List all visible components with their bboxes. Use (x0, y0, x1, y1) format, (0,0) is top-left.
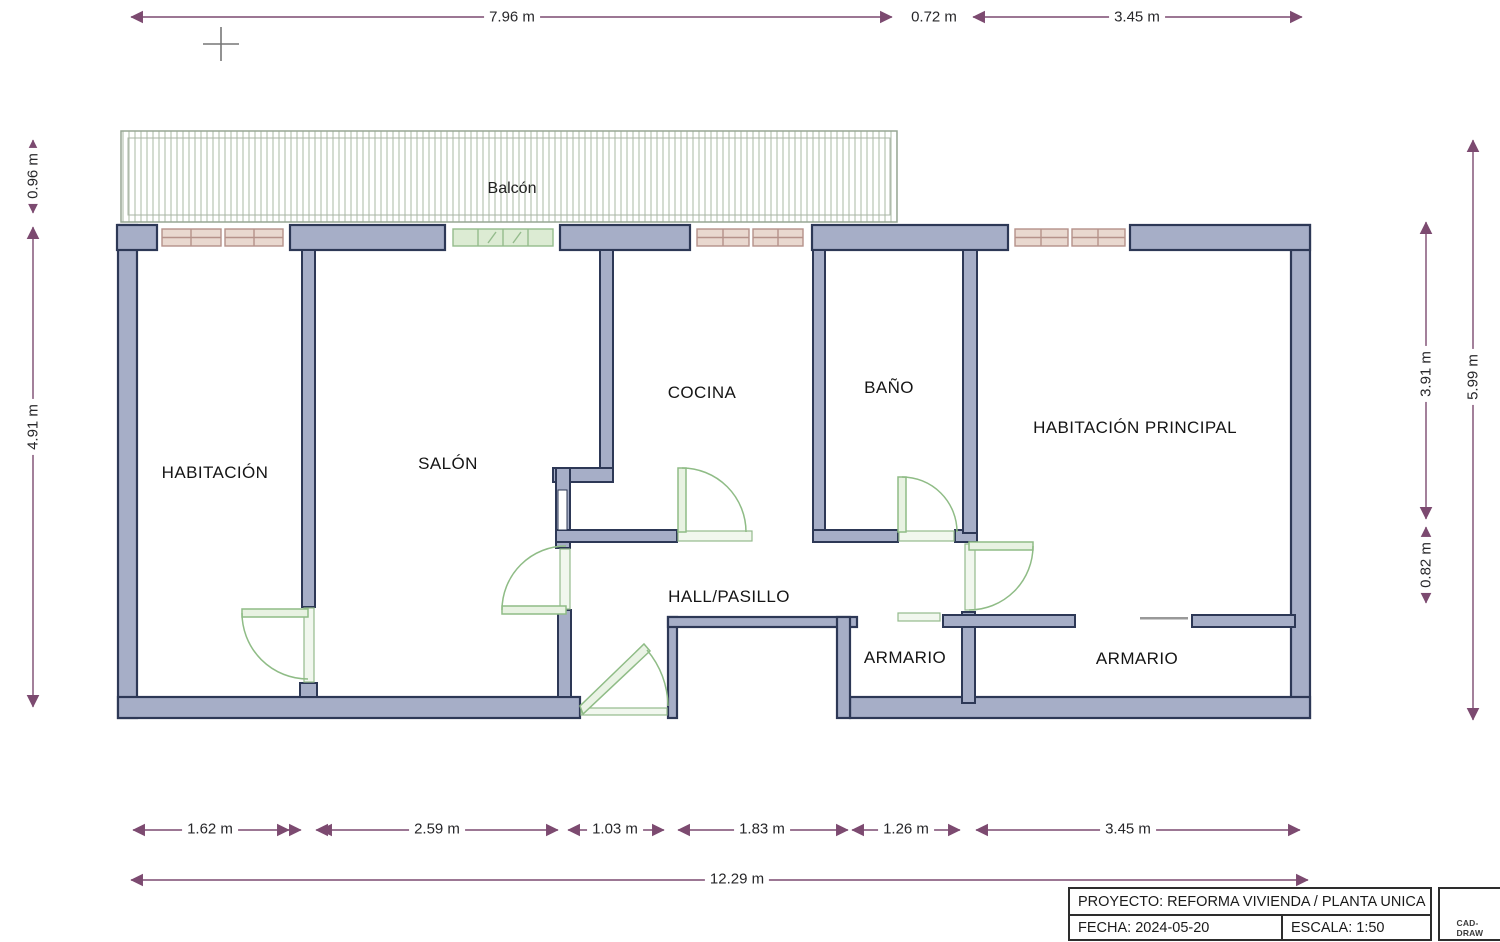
dim-right-inner-2: 0.82 m (1418, 537, 1435, 593)
interior-walls (300, 250, 1295, 703)
room-label-armario-2: ARMARIO (1096, 649, 1178, 669)
title-block-logo-cell: CAD-DRAW (1438, 887, 1500, 941)
wall-niche (558, 490, 567, 530)
door-entrance (580, 644, 668, 714)
room-label-bano: BAÑO (864, 378, 914, 398)
title-block-date: FECHA: 2024-05-20 (1070, 916, 1283, 939)
room-label-hall-pasillo: HALL/PASILLO (668, 587, 790, 607)
window-green-balcony-door (453, 229, 553, 246)
dim-top-3: 3.45 m (1109, 9, 1165, 26)
floor-plan-canvas: Balcón HABITACIÓN SALÓN COCINA BAÑO HABI… (0, 0, 1500, 942)
door-cocina (678, 468, 746, 532)
exterior-walls (117, 225, 1310, 718)
cross-marker-icon (203, 27, 239, 61)
room-label-habitacion: HABITACIÓN (162, 463, 269, 483)
dim-top-1: 7.96 m (484, 9, 540, 26)
dim-bottom-5: 1.26 m (878, 821, 934, 838)
room-label-cocina: COCINA (668, 383, 737, 403)
door-habitacion-principal (969, 542, 1033, 610)
room-label-armario-1: ARMARIO (864, 648, 946, 668)
room-label-salon: SALÓN (418, 454, 478, 474)
dim-bottom-4: 1.83 m (734, 821, 790, 838)
door-salon (502, 546, 566, 614)
door-thresholds (304, 531, 975, 715)
armario-rail-line (1140, 617, 1188, 620)
balcony-area (121, 131, 897, 222)
dim-left-2: 4.91 m (25, 399, 42, 455)
logo-text: CAD-DRAW (1457, 918, 1490, 938)
dim-bottom-3: 1.03 m (587, 821, 643, 838)
room-label-habitacion-principal: HABITACIÓN PRINCIPAL (1033, 418, 1237, 438)
dim-top-2: 0.72 m (906, 9, 962, 26)
dim-bottom-2: 2.59 m (409, 821, 465, 838)
title-block-scale: ESCALA: 1:50 (1283, 916, 1430, 939)
dim-left-1: 0.96 m (25, 148, 42, 204)
title-block-project: PROYECTO: REFORMA VIVIENDA / PLANTA UNIC… (1070, 889, 1430, 916)
room-label-balcon: Balcón (488, 180, 537, 198)
door-bano (898, 477, 957, 532)
door-habitacion (242, 609, 308, 679)
dim-right-outer: 5.99 m (1465, 349, 1482, 405)
title-block: PROYECTO: REFORMA VIVIENDA / PLANTA UNIC… (1068, 887, 1432, 941)
dim-bottom-1: 1.62 m (182, 821, 238, 838)
dim-bottom-6: 3.45 m (1100, 821, 1156, 838)
dim-bottom-total: 12.29 m (705, 871, 769, 888)
dim-right-inner-1: 3.91 m (1418, 346, 1435, 402)
